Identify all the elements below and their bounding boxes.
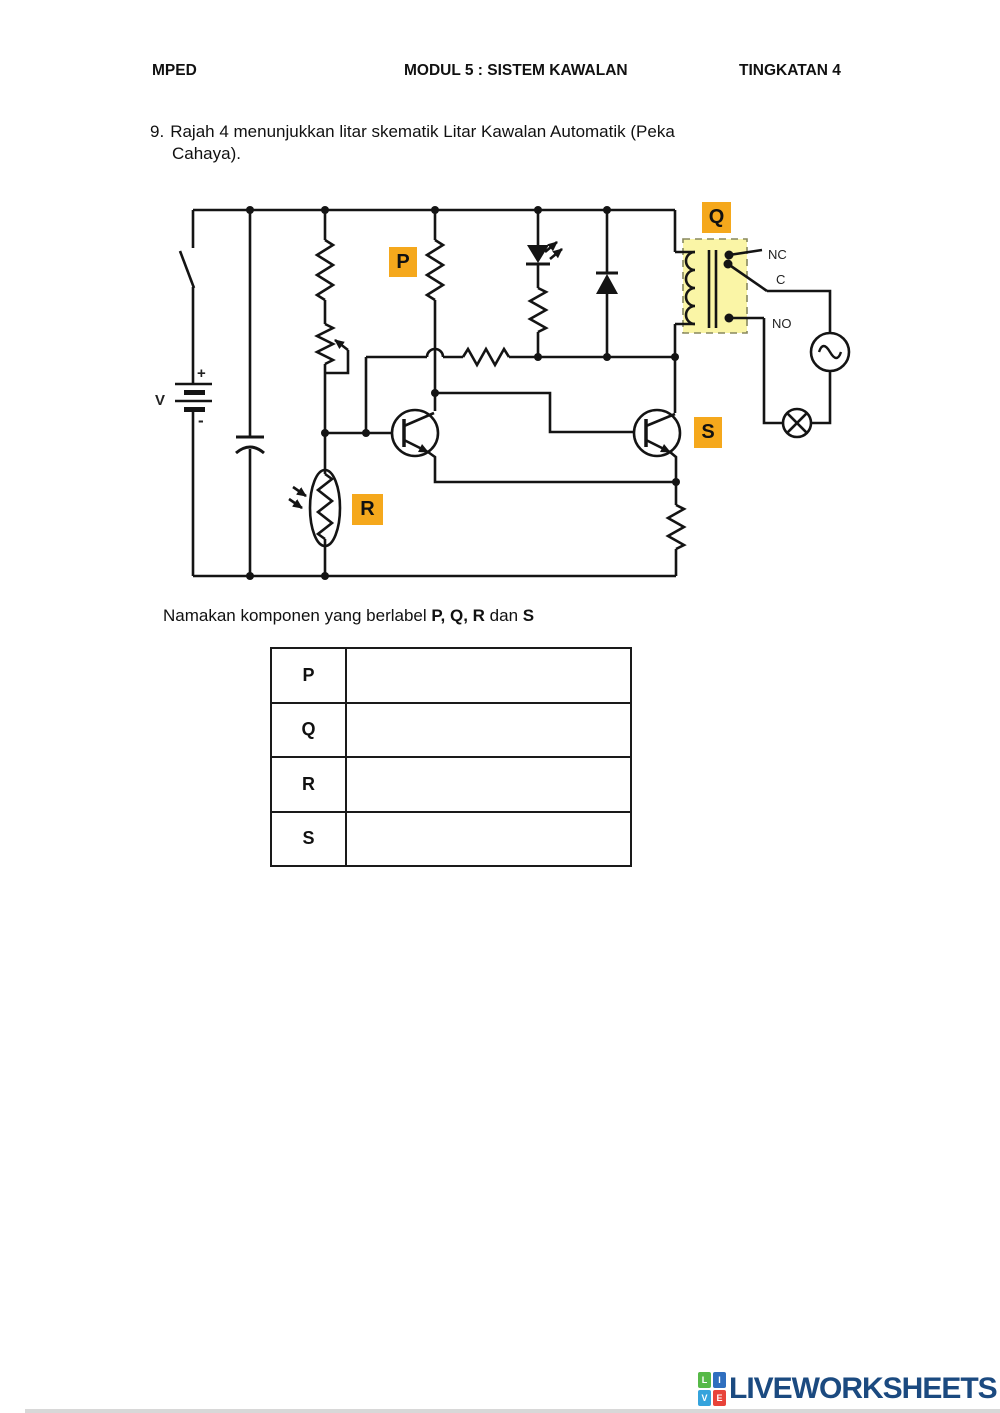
label-chip-r: R [352,494,383,525]
transistor-1 [392,410,676,482]
answer-cell-p[interactable] [346,648,631,703]
instruction-part2: dan [485,606,523,625]
capacitor [236,210,264,576]
t1-collector-to-t2-base [435,393,634,432]
table-row: R [271,757,631,812]
row-label-s: S [271,812,346,867]
lamp [764,318,811,437]
relay-no-label: NO [772,316,792,331]
ldr [289,470,340,576]
resistor-p [427,210,443,411]
worksheet-page: MPED MODUL 5 : SISTEM KAWALAN TINGKATAN … [0,0,1000,1413]
led [526,210,562,357]
ac-source [767,291,849,423]
instruction-text: Namakan komponen yang berlabel P, Q, R d… [163,606,534,626]
logo-square-v: V [698,1390,711,1406]
instruction-bold2: S [523,606,534,625]
answer-cell-s[interactable] [346,812,631,867]
relay-nc-label: NC [768,247,787,262]
row-label-p: P [271,648,346,703]
liveworksheets-logo-icon: L I V E [698,1372,726,1406]
answer-table: P Q R S [270,647,632,867]
instruction-bold1: P, Q, R [431,606,485,625]
liveworksheets-logo-text: LIVEWORKSHEETS [729,1372,997,1406]
logo-square-l: L [698,1372,711,1388]
row-label-q: Q [271,703,346,758]
instruction-part1: Namakan komponen yang berlabel [163,606,431,625]
logo-square-e: E [713,1390,726,1406]
table-row: Q [271,703,631,758]
liveworksheets-branding: L I V E LIVEWORKSHEETS [698,1372,997,1406]
label-chip-q: Q [702,202,731,233]
row-label-r: R [271,757,346,812]
logo-square-i: I [713,1372,726,1388]
table-row: S [271,812,631,867]
label-chip-s: S [694,417,722,448]
label-chip-p: P [389,247,417,277]
switch [180,210,194,288]
battery-plus-label: + [197,365,206,382]
emitter-resistor [668,482,684,576]
table-row: P [271,648,631,703]
potentiometer [317,324,348,474]
answer-cell-q[interactable] [346,703,631,758]
page-bottom-divider [25,1409,1000,1413]
circuit-diagram: NC C NO V + - [0,0,1000,620]
fixed-resistor-top [317,210,333,324]
diode [596,210,618,357]
battery [175,287,212,576]
relay-c-label: C [776,272,785,287]
feedback-network [325,349,675,433]
battery-v-label: V [155,392,165,409]
transistor-2 [634,410,680,482]
answer-cell-r[interactable] [346,757,631,812]
battery-minus-label: - [198,411,204,430]
